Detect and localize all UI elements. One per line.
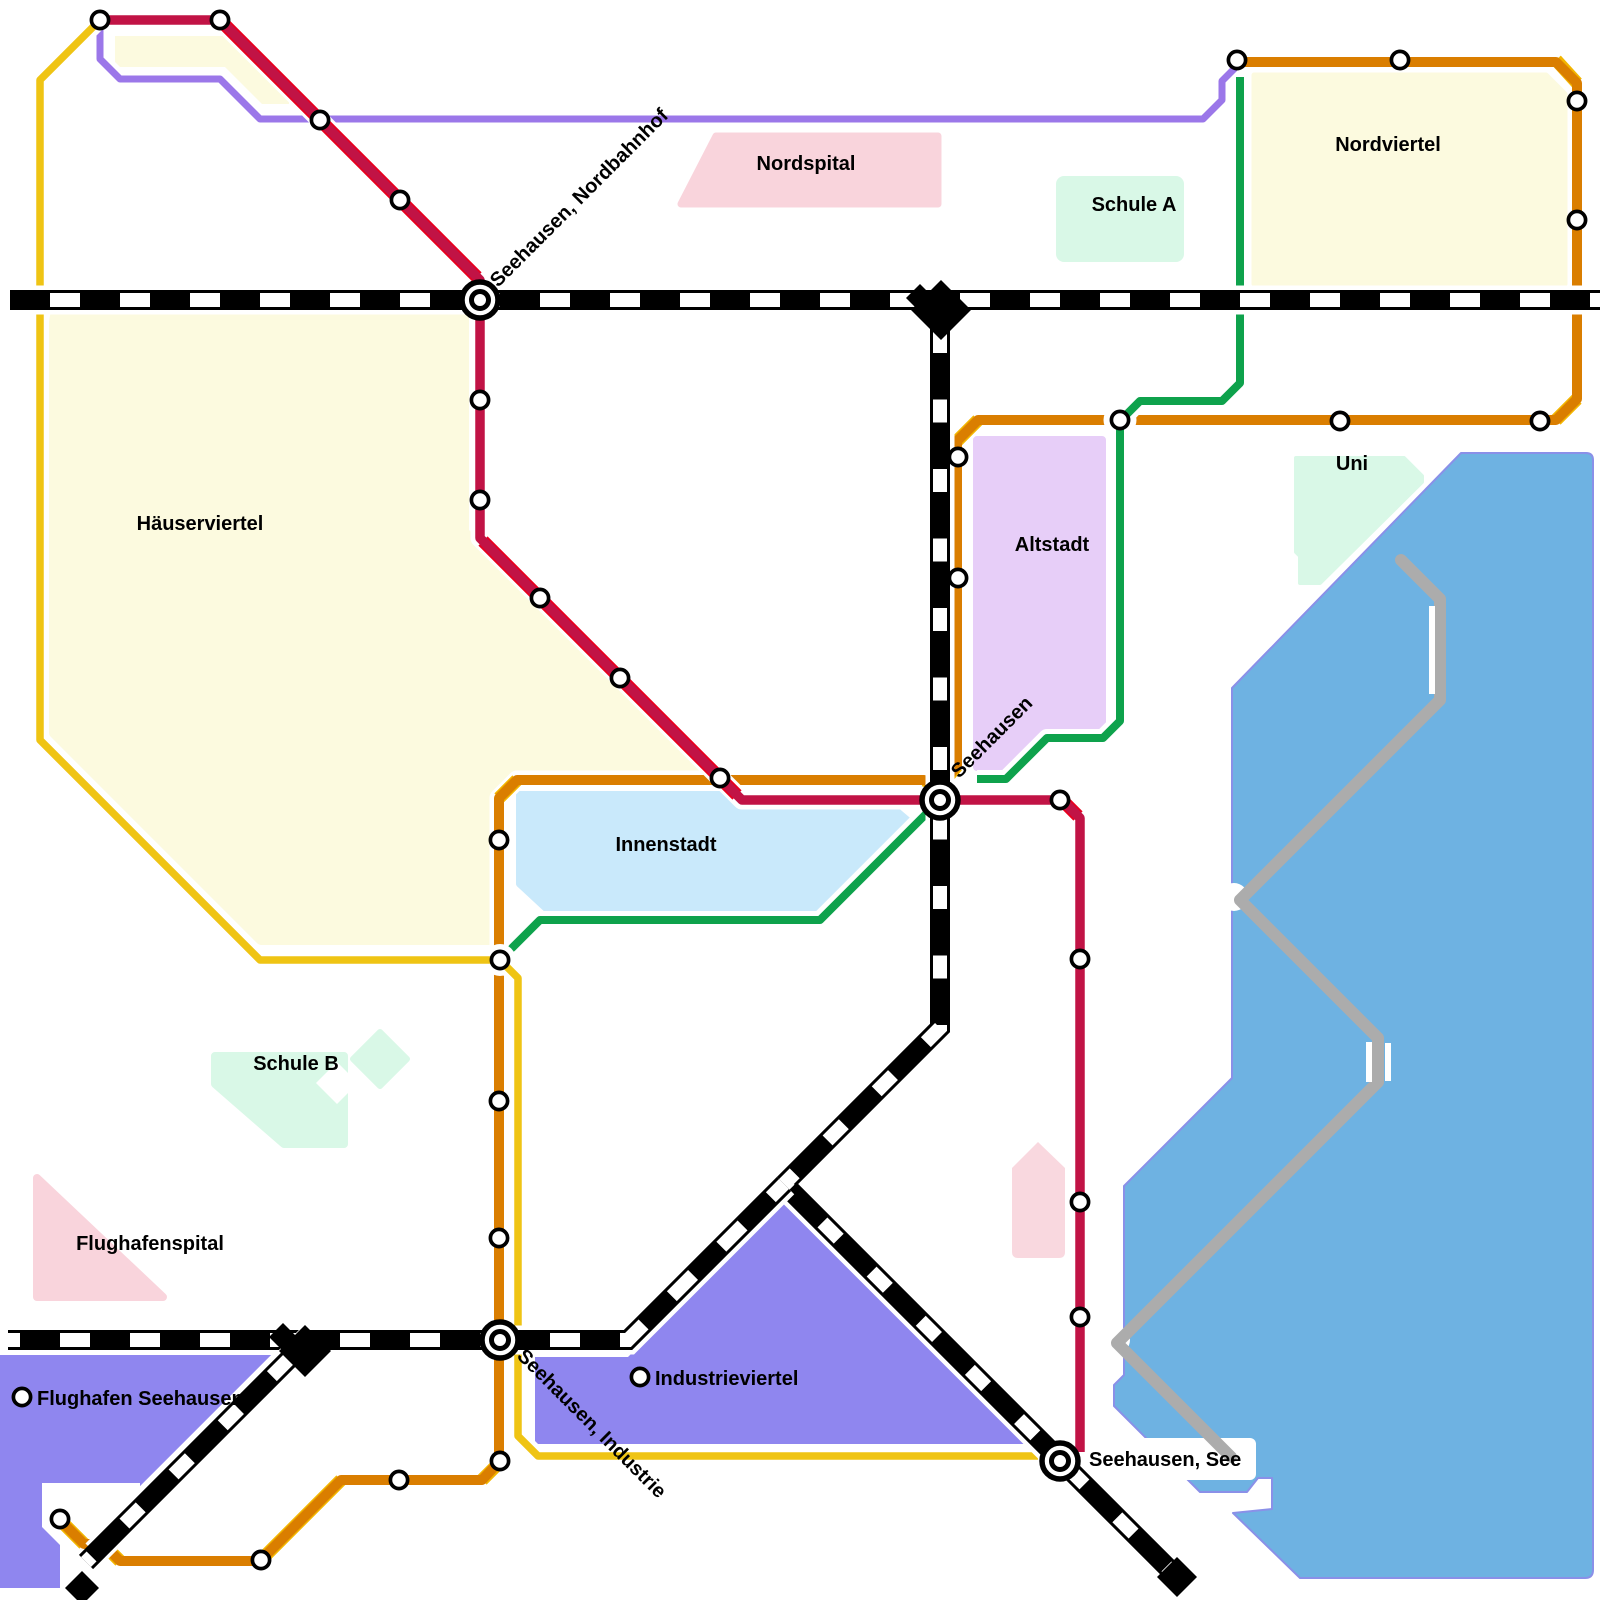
svg-text:Innenstadt: Innenstadt <box>615 834 716 856</box>
svg-text:Uni: Uni <box>1336 453 1368 475</box>
svg-text:Flughafenspital: Flughafenspital <box>76 1233 224 1255</box>
svg-text:Nordspital: Nordspital <box>757 153 856 175</box>
svg-text:Flughafen Seehausen: Flughafen Seehausen <box>37 1388 244 1410</box>
svg-text:Schule B: Schule B <box>253 1053 339 1075</box>
svg-text:Industrieviertel: Industrieviertel <box>655 1368 798 1390</box>
svg-text:Nordviertel: Nordviertel <box>1335 134 1441 156</box>
svg-text:Schule A: Schule A <box>1092 194 1177 216</box>
svg-text:Altstadt: Altstadt <box>1015 534 1090 556</box>
svg-text:Häuserviertel: Häuserviertel <box>137 513 264 535</box>
svg-text:Seehausen, See: Seehausen, See <box>1089 1449 1241 1471</box>
